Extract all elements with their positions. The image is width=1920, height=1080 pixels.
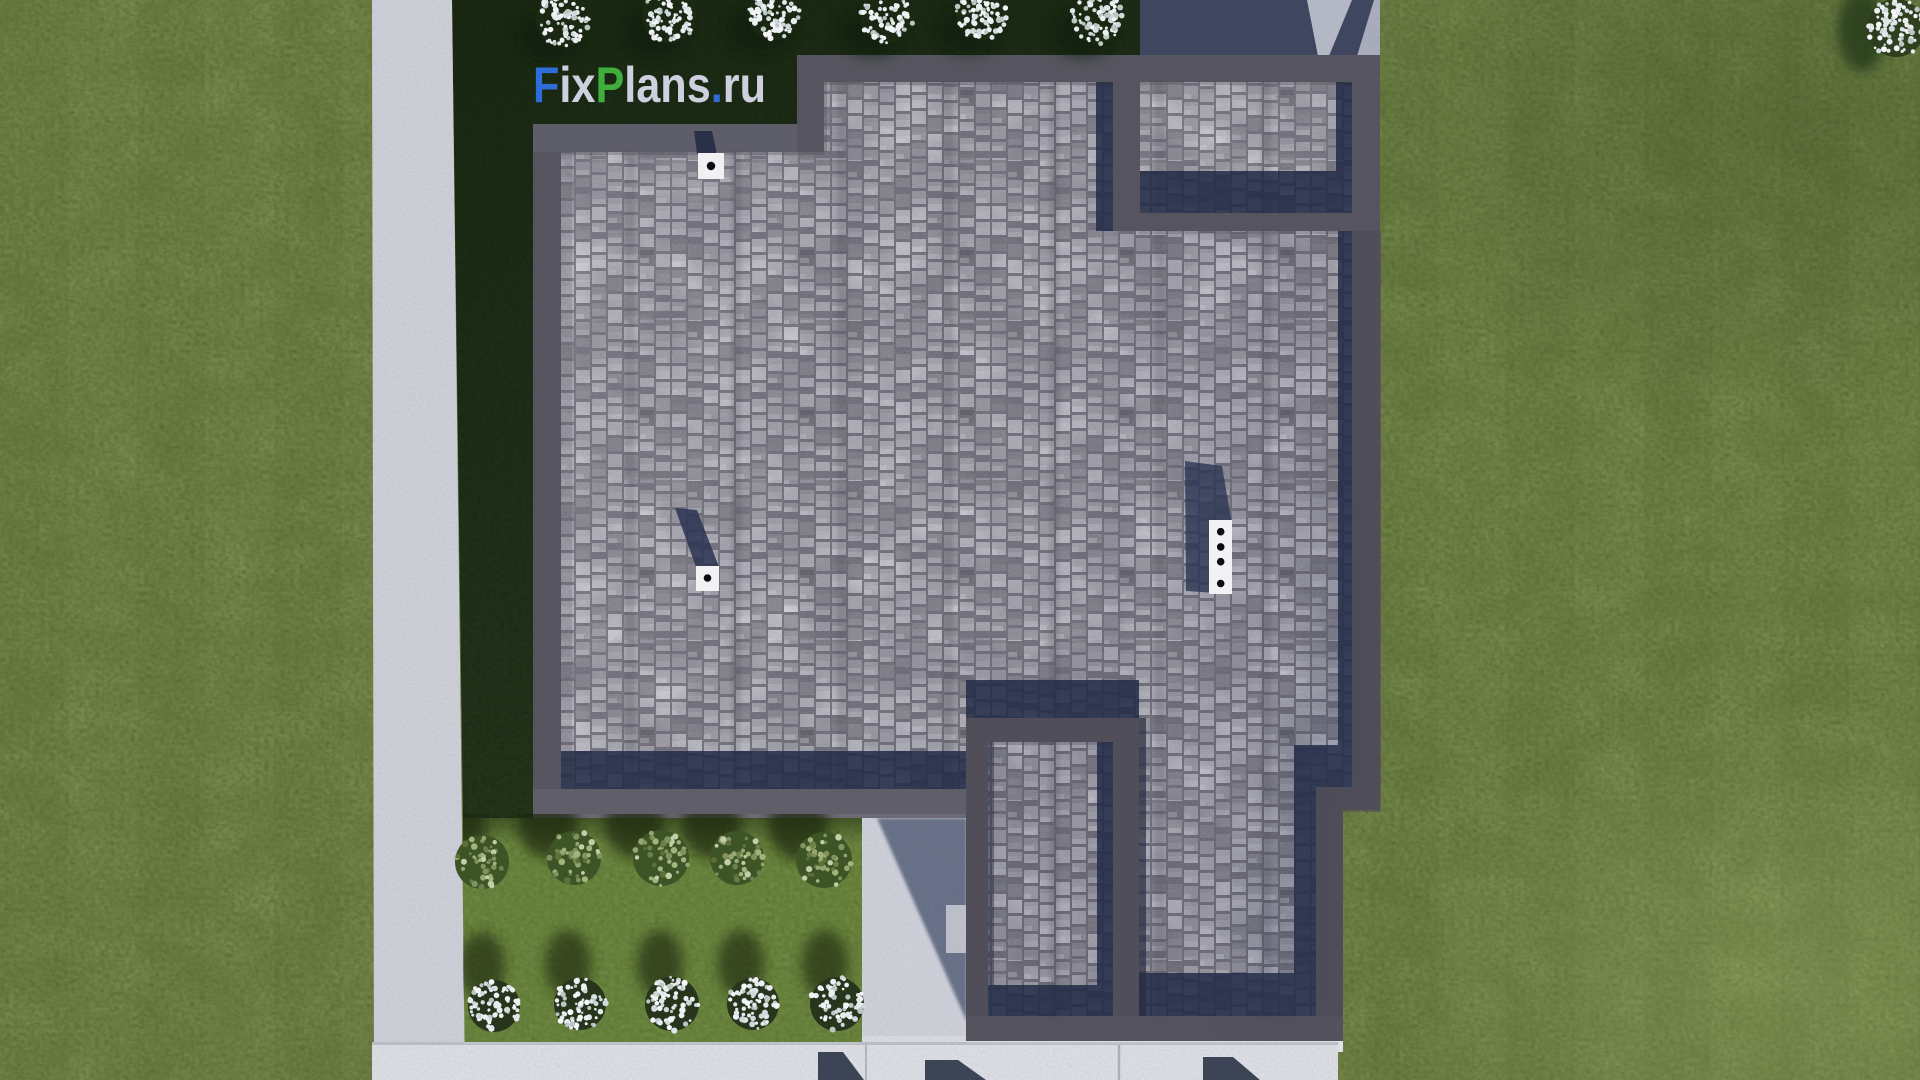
svg-text:FixPlans.ru: FixPlans.ru xyxy=(533,57,766,113)
